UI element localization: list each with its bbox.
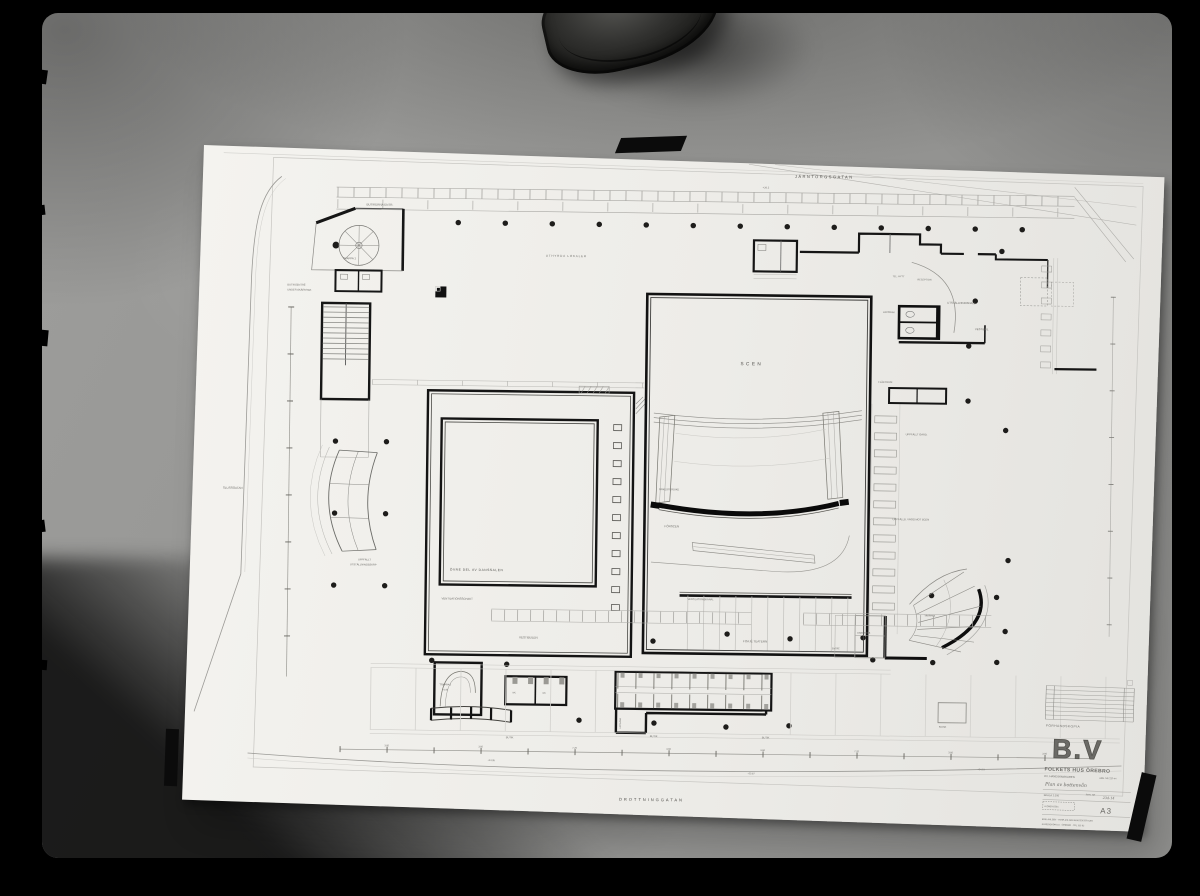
firm-line-2: KUNGSGATAN 10 · ÖREBRO · TEL 103 62 — [1042, 823, 1085, 827]
label-shop-2: BUTIK — [650, 734, 658, 738]
tape-top — [615, 136, 687, 154]
blueprint-paper: JÄRNTORGSGATAN +26.2 BUTIKERNA ENTR. UTH… — [182, 145, 1164, 832]
plan-rotated: JÄRNTORGSGATAN +26.2 BUTIKERNA ENTR. UTH… — [193, 157, 1137, 808]
dim-3: 3.60 — [666, 748, 671, 751]
stair-round-topleft — [312, 208, 404, 271]
label-rented: UTHYRDA LOKALER — [546, 254, 587, 259]
dim-4: 3.60 — [760, 749, 765, 752]
fan-stair — [834, 567, 989, 723]
label-hall: ÖVRE DEL AV DANSSALEN — [450, 568, 504, 573]
label-stair1: TRAPPA 1 — [343, 256, 357, 260]
format: A3 — [1100, 806, 1112, 815]
theatre — [643, 294, 871, 656]
stamp: FÖRHANDSKOPIA — [1046, 724, 1081, 729]
film-edge-nick — [42, 70, 48, 85]
label-level-a: +24.05 — [487, 759, 495, 762]
label-entry-left-1: BUTIKSENTRÉ — [287, 281, 305, 286]
right-wing — [752, 232, 1098, 405]
logo-bv: B.V — [1052, 734, 1104, 766]
plan-labels: JÄRNTORGSGATAN +26.2 BUTIKERNA ENTR. UTH… — [219, 167, 1055, 807]
arcade-shops — [336, 187, 1074, 218]
photo-frame: JÄRNTORGSGATAN +26.2 BUTIKERNA ENTR. UTH… — [0, 0, 1200, 896]
title-block: FÖRHANDSKOPIA B.V FOLKETS HUS ÖREBRO KV.… — [1042, 678, 1135, 829]
left-wing — [320, 270, 381, 458]
label-kiosk: KIOSK — [939, 726, 947, 729]
label-entry-r: ENTRÉ — [832, 647, 840, 650]
label-orchestra: ORKESTERDIKE — [659, 487, 680, 491]
label-level-top: +26.2 — [763, 185, 770, 189]
label-street-bottom: DROTTNINGGATAN — [619, 797, 684, 803]
label-cloak: KAPPRUM — [883, 311, 894, 314]
label-exhibition: UTSTÄLLNINGSHALL — [947, 301, 976, 305]
dim-2: 7.20 — [572, 747, 577, 750]
dimension-lines — [286, 287, 1114, 759]
label-stage: SCEN — [740, 361, 763, 366]
label-entry-left-2: UNDER SKÄRMTAK — [287, 287, 311, 291]
sheet-title: Plan av bottenvån — [1044, 781, 1087, 789]
label-foyer: FOAJÉ TEATERN — [743, 638, 767, 643]
north-symbol — [435, 286, 446, 297]
label-phone: TEL. HYTT — [893, 275, 906, 278]
label-shop-1: BUTIK — [506, 735, 514, 739]
label-reception: RECEPTION — [918, 278, 932, 281]
label-stair3: TRAPPA 3 — [924, 614, 936, 617]
label-wardrobe-flap: UPPFÄLLT GARD. — [906, 432, 928, 436]
label-shop-3: BUTIK — [762, 735, 770, 739]
site-boundary — [193, 157, 1137, 781]
label-wall-note: UPPFÄLLB. VÄGG MOT SCEN — [893, 517, 930, 521]
label-level-c: +24.15 — [977, 768, 985, 771]
firm-line-1: ERIK AHLSÉN · TORE AHLSÉN ARKITEKTER SAR — [1042, 818, 1093, 823]
floor-plan-svg: JÄRNTORGSGATAN +26.2 BUTIKERNA ENTR. UTH… — [182, 145, 1163, 831]
dance-hall — [369, 380, 645, 657]
drawing-no: 234-14 — [1102, 796, 1115, 800]
dim-7: 3.60 — [1042, 752, 1047, 755]
revision-table — [1045, 678, 1134, 723]
label-vent-shaft: VENTILATIONSSCHAKT — [441, 596, 473, 600]
label-upgang: UPPGÅNG — [619, 717, 622, 728]
label-display-2: UTSTÄLLNINGSSKÅP — [350, 561, 377, 566]
label-display-1: UPPFÄLLT — [358, 557, 371, 561]
label-level-stair: +1.94 — [442, 689, 449, 691]
revision-note: A OMBYGGN. — [1044, 805, 1059, 809]
film-edge-nick — [42, 330, 49, 347]
drawing-no-label: RITN. NR — [1086, 794, 1096, 796]
tape-left — [164, 729, 179, 786]
label-vestibule-c: VESTIBULEN — [519, 635, 538, 639]
label-wc-1: WC — [512, 692, 516, 694]
label-street-left: SLUSSGATAN — [223, 486, 243, 490]
film-edge-nick — [42, 660, 47, 670]
label-vent-duct: VENTILATIONSKANAL — [687, 598, 714, 601]
label-street-top: JÄRNTORGSGATAN — [795, 174, 854, 180]
label-cloak2: GARDEROB — [857, 632, 871, 635]
photo-background: JÄRNTORGSGATAN +26.2 BUTIKERNA ENTR. UTH… — [42, 13, 1172, 858]
scale: SKALA 1:100 — [1044, 793, 1060, 798]
display-arc — [309, 445, 377, 557]
job-no: ARB. NR 237-44 — [1099, 777, 1117, 781]
label-vestibule-r: VESTIBUL — [975, 327, 989, 331]
film-edge-nick — [42, 205, 46, 216]
dim-1: 3.60 — [478, 745, 483, 748]
block-name: KV. HANDSKMAKAREN — [1044, 774, 1075, 779]
label-shops: BUTIKERNA ENTR. — [366, 202, 393, 206]
dim-0: 3.60 — [384, 744, 389, 747]
dim-6: 3.60 — [948, 751, 953, 754]
label-stair2: TRAPPA 2 — [439, 683, 451, 686]
bottom-rooms — [370, 608, 1122, 743]
film-edge-nick — [42, 520, 46, 533]
dim-5: 7.20 — [854, 750, 859, 753]
label-level-b: +23.87 — [747, 772, 755, 775]
label-forestage: FÖRSCEN — [664, 524, 679, 528]
label-wc-2: WC — [542, 693, 546, 695]
label-fan-room: FLÄKTRUM — [878, 380, 892, 384]
